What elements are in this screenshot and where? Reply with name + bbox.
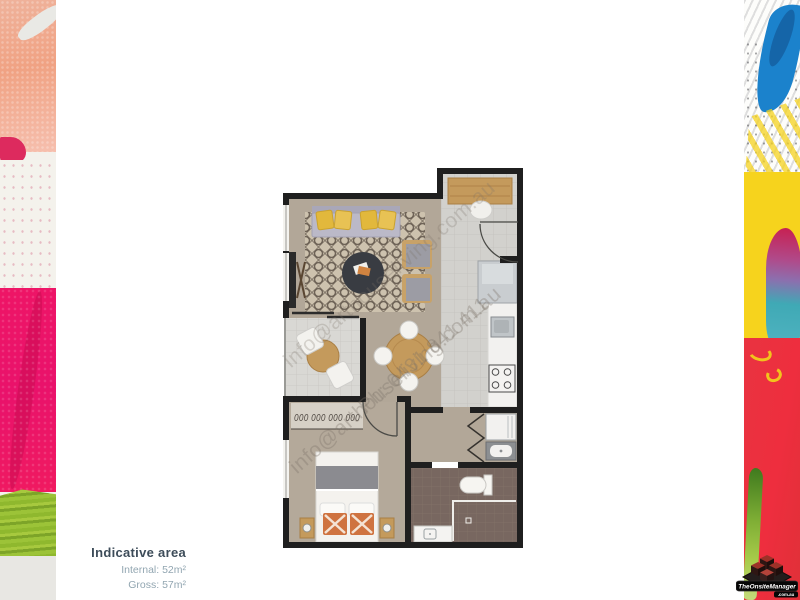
sink-basin <box>494 320 509 333</box>
fridge-top <box>482 264 513 284</box>
logo-title: TheOnsiteManager <box>738 584 796 591</box>
floor-plan: 000 000 000 000 <box>281 166 524 550</box>
desk-chair <box>470 201 492 219</box>
dining-chair <box>400 321 418 339</box>
sofa-cushion <box>378 210 396 230</box>
entry-desk <box>448 178 512 204</box>
area-title: Indicative area <box>30 545 186 560</box>
left-paint-strip <box>0 0 56 600</box>
dining-chair <box>426 347 444 365</box>
bed-blanket <box>316 466 378 490</box>
sofa-cushion <box>334 210 352 230</box>
right-paint-strip <box>744 0 800 600</box>
armchair-cushion <box>406 244 430 267</box>
paint-speckles <box>0 160 56 290</box>
listing-image: 000 000 000 000 <box>0 0 800 600</box>
dining-chair <box>400 373 418 391</box>
area-internal: Internal: 52m² <box>30 563 186 578</box>
sofa-cushion <box>316 210 334 230</box>
toilet <box>460 477 486 493</box>
vanity <box>414 526 452 542</box>
sofa-cushion <box>360 210 378 230</box>
lamp-icon <box>383 524 391 532</box>
area-info: Indicative area Internal: 52m² Gross: 57… <box>30 545 186 593</box>
lamp-icon <box>303 524 311 532</box>
stove <box>489 365 515 392</box>
canvas-texture <box>0 288 56 492</box>
paint-multicolor-blob <box>766 228 800 344</box>
tv <box>289 252 296 308</box>
wardrobe-hangers-icon: 000 000 000 000 <box>294 413 360 424</box>
drain-icon <box>500 450 503 453</box>
dining-chair <box>374 347 392 365</box>
tap-icon <box>429 533 431 535</box>
bed-cushion <box>323 513 347 535</box>
logo-domain: .com.au <box>778 592 795 597</box>
area-gross: Gross: 57m² <box>30 578 186 593</box>
onsite-manager-logo: TheOnsiteManager .com.au <box>736 536 798 598</box>
bed-cushion <box>350 513 374 535</box>
armchair-cushion <box>406 278 430 301</box>
